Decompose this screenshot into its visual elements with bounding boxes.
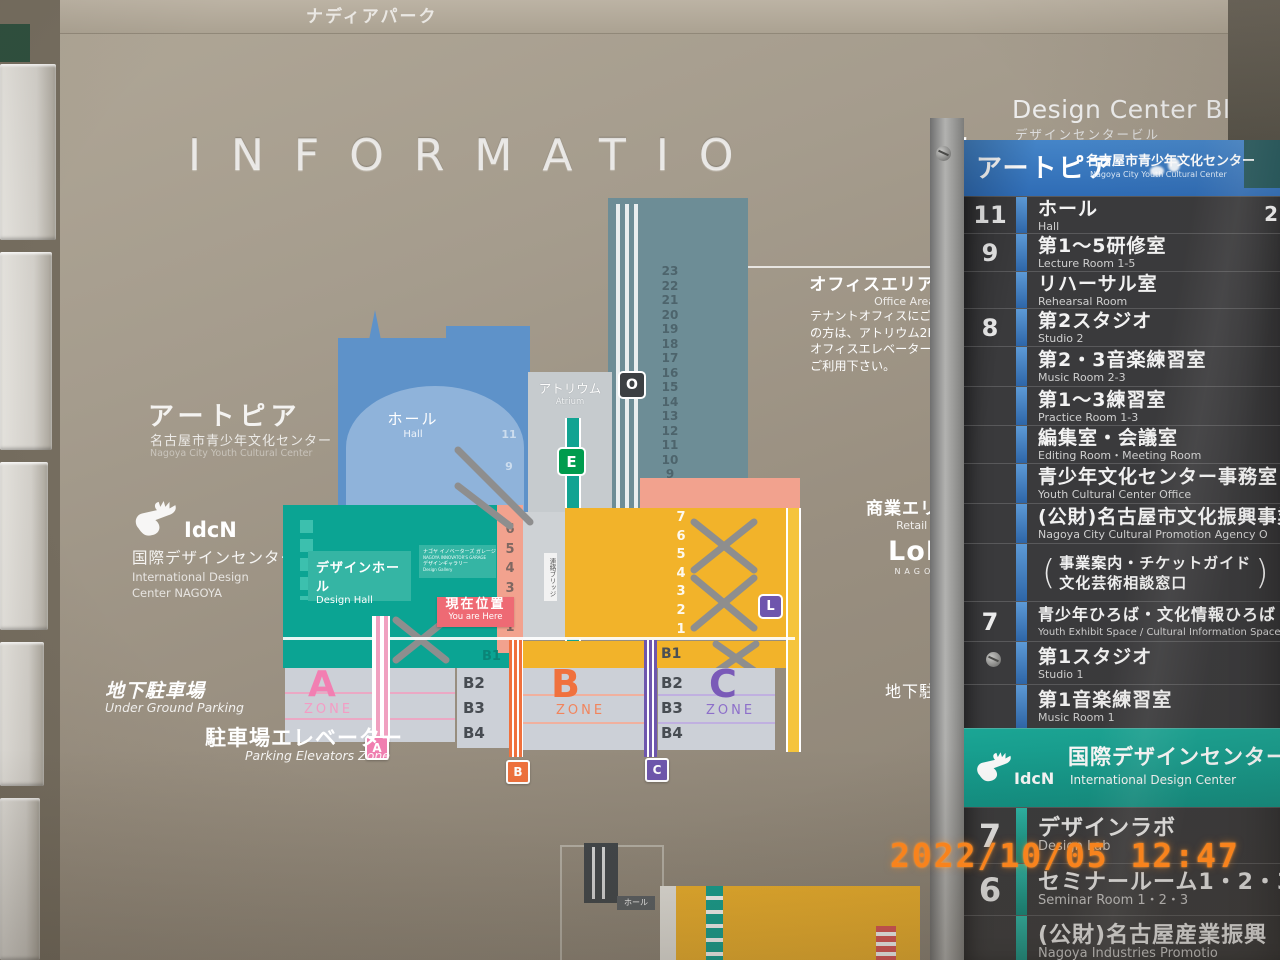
floorplan-white-block (660, 886, 676, 960)
tower-elevator-stripe (616, 204, 620, 508)
office-area-label: オフィスエリア Office Area (795, 270, 935, 308)
directory-row-bracketed: ( 事業案内・チケットガイド文化芸術相談窓口 ) (964, 543, 1280, 601)
row-accent (1016, 685, 1027, 728)
idcn-label-en1: International Design (132, 570, 249, 584)
corner-shadow (1228, 0, 1280, 140)
screw-icon (986, 652, 1001, 667)
floorplan-teal-column (706, 886, 723, 960)
floorplan-hall-label: ホール (617, 896, 655, 910)
wall-tile (0, 642, 44, 786)
idcn-label-jp: 国際デザインセンター (132, 546, 297, 568)
floor-number: 6 (964, 871, 1016, 909)
zone-c-word: ZONE (706, 703, 755, 718)
artopia-label-jp: 名古屋市青少年文化センター (150, 430, 332, 449)
idcn-directory-band: IdcN 国際デザインセンター International Design Cen… (964, 728, 1280, 807)
underground-parking-label-jp: 地下駐車場 (105, 676, 205, 703)
floor-number: 9 (964, 239, 1016, 267)
escalator-icon (448, 438, 540, 533)
zone-b-word: ZONE (556, 703, 605, 718)
display-case-frame (930, 118, 964, 960)
ground-level-line (283, 637, 795, 640)
floorplan-core-line (592, 847, 595, 899)
basement-floors-right: B2B3B4 (661, 671, 701, 746)
wall-tile (0, 252, 52, 450)
idcn-hand-logo-icon (974, 751, 1016, 787)
glass-reflection (1168, 158, 1180, 172)
basement-floors-left: B2B3B4 (463, 671, 503, 746)
row-accent (1016, 426, 1027, 463)
tower-floor-numbers: 232221201918171615141312111098 (655, 264, 685, 496)
directory-row: 第2・3音楽練習室Music Room 2-3 (964, 346, 1280, 386)
hall-spire (369, 310, 381, 340)
paren-close: ) (1255, 553, 1268, 593)
zone-c-letter: C (709, 662, 737, 706)
design-hall-box: デザインホール Design Hall (308, 551, 411, 601)
screw-icon (936, 146, 951, 161)
row-accent (1016, 309, 1027, 346)
wall-tile (0, 798, 40, 960)
directory-row: (公財)名古屋市文化振興事業Nagoya City Cultural Promo… (964, 503, 1280, 543)
directory-row: 11 ホールHall (964, 196, 1280, 233)
floorplan-core (584, 843, 618, 903)
tower-elevator-stripe (625, 204, 629, 508)
wall-tile (0, 462, 48, 630)
link-bridge-label: 連絡ブリッジ (544, 553, 557, 601)
directory-row: 8 第2スタジオStudio 2 (964, 308, 1280, 346)
row-accent (1016, 197, 1027, 233)
directory-row: (公財)名古屋産業振興Nagoya Industries Promotio (964, 915, 1280, 960)
directory-row: 青少年文化センター事務室Youth Cultural Center Office (964, 463, 1280, 503)
floor-number: 7 (964, 608, 1016, 636)
row-accent (1016, 642, 1027, 684)
row-accent (1016, 347, 1027, 386)
row-accent (1016, 387, 1027, 425)
directory-row: 第1スタジオStudio 1 (964, 641, 1280, 684)
green-wall-patch (0, 24, 30, 62)
row-accent (1016, 234, 1027, 271)
retail-elevator-strip (786, 508, 801, 752)
floorplan-red-column (876, 926, 896, 960)
sign-top-bevel (0, 0, 1280, 34)
office-area-note: テナントオフィスにご用 の方は、アトリウム2Fの オフィスエレベーターを ご利用… (810, 308, 950, 374)
floor-number: 8 (964, 314, 1016, 342)
parking-elevator-column-c (644, 640, 657, 757)
floorplan-core-line (602, 847, 605, 899)
directory-row: リハーサル室Rehearsal Room (964, 271, 1280, 308)
idcn-logo-text: IdcN (184, 518, 237, 542)
you-are-here-badge: 現在位置 You are Here (437, 597, 514, 627)
camera-timestamp: 2022/10/05 12:47 (890, 836, 1240, 875)
parking-elevator-column-b (509, 640, 523, 757)
adjacent-panel-digit: 2 (1264, 202, 1278, 226)
wall-tiles (0, 0, 60, 960)
directory-row: 9 第1〜5研修室Lecture Room 1-5 (964, 233, 1280, 271)
zone-a-letter: A (308, 664, 336, 705)
hall-label: ホール Hall (368, 408, 458, 440)
row-accent (1016, 464, 1027, 503)
park-name: ナディアパーク (306, 2, 437, 27)
office-elevator-badge: O (618, 371, 646, 399)
innovators-garage-box: ナゴヤ イノベーターズ ガレージ NAGOYA INNOVATOR'S GARA… (419, 545, 496, 578)
idcn-hand-logo-icon (132, 500, 182, 542)
atrium-label: アトリウム Atrium (528, 378, 612, 407)
information-title: INFORMATIO (188, 130, 764, 181)
wall-tile (0, 64, 56, 240)
underground-parking-label-en: Under Ground Parking (105, 700, 244, 715)
row-accent (1016, 602, 1027, 641)
directory-row: 第1〜3練習室Practice Room 1-3 (964, 386, 1280, 425)
paren-open: ( (1042, 553, 1055, 593)
zone-b-letter: B (551, 662, 580, 706)
floor-number: 11 (964, 201, 1016, 229)
office-area-pointer-line (748, 266, 936, 268)
idcn-label-en2: Center NAGOYA (132, 586, 222, 600)
zone-c-badge: C (645, 758, 669, 782)
directory-row: 編集室・会議室Editing Room・Meeting Room (964, 425, 1280, 463)
artopia-label-en: Nagoya City Youth Cultural Center (150, 448, 312, 459)
salmon-floor-band (640, 478, 800, 510)
information-sign-photo: ナディアパーク INFORMATIO N Design Center Bldg.… (0, 0, 1280, 960)
elevator-badge: E (557, 447, 586, 476)
zone-a-word: ZONE (304, 702, 353, 717)
row-accent (1016, 544, 1027, 601)
b1-label-right: B1 (661, 646, 681, 662)
directory-row: 第1音楽練習室Music Room 1 (964, 684, 1280, 728)
row-accent (1016, 916, 1027, 960)
b1-label-left: B1 (482, 649, 501, 664)
directory-row: 7 青少年ひろば・文化情報ひろばYouth Exhibit Space / Cu… (964, 601, 1280, 641)
directory-header: アートピア 名古屋市青少年文化センター Nagoya City Youth Cu… (964, 140, 1280, 196)
escalator-icon (684, 512, 764, 638)
tower-elevator-stripe (634, 204, 638, 508)
artopia-label: アートピア (148, 396, 301, 433)
glass-reflection (1150, 166, 1164, 176)
row-accent (1016, 504, 1027, 543)
row-accent (1016, 272, 1027, 308)
zone-b-badge: B (506, 760, 530, 784)
parking-elevator-label-en: Parking Elevators Zone (245, 748, 390, 763)
